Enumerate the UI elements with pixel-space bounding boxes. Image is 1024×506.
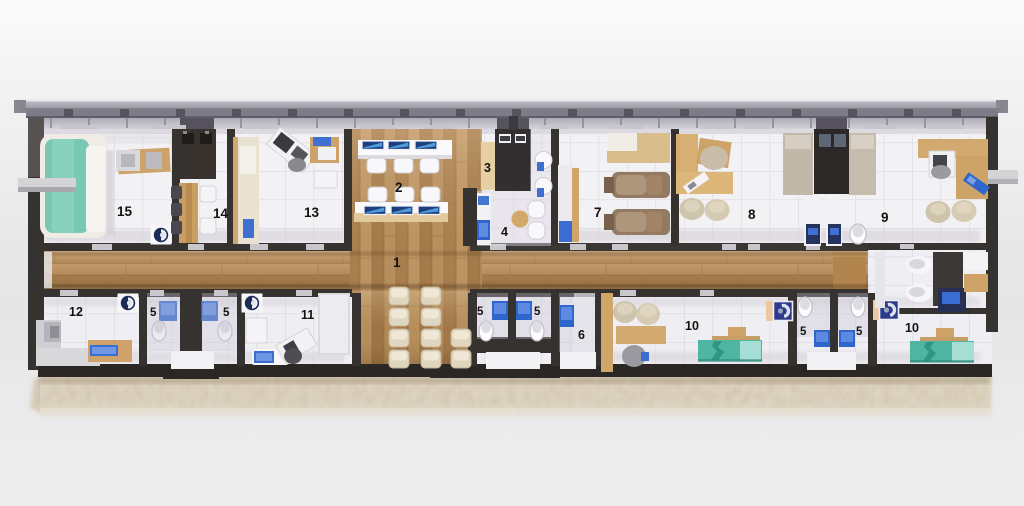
svg-text:13: 13 — [304, 205, 320, 220]
svg-text:5: 5 — [223, 307, 230, 319]
svg-text:5: 5 — [150, 307, 157, 319]
svg-text:8: 8 — [748, 207, 756, 222]
svg-text:4: 4 — [501, 225, 508, 239]
svg-text:10: 10 — [685, 319, 699, 333]
svg-text:12: 12 — [69, 305, 83, 319]
svg-text:5: 5 — [534, 306, 541, 318]
svg-text:7: 7 — [594, 205, 602, 220]
svg-text:15: 15 — [117, 204, 133, 219]
svg-text:10: 10 — [905, 321, 919, 335]
svg-text:5: 5 — [856, 326, 863, 338]
svg-text:1: 1 — [393, 255, 401, 270]
svg-text:6: 6 — [578, 328, 585, 342]
svg-text:11: 11 — [301, 308, 314, 322]
svg-text:5: 5 — [477, 306, 484, 318]
svg-text:2: 2 — [395, 180, 403, 195]
svg-text:14: 14 — [213, 206, 229, 221]
svg-text:9: 9 — [881, 210, 889, 225]
svg-text:5: 5 — [800, 326, 807, 338]
svg-text:3: 3 — [484, 161, 491, 175]
